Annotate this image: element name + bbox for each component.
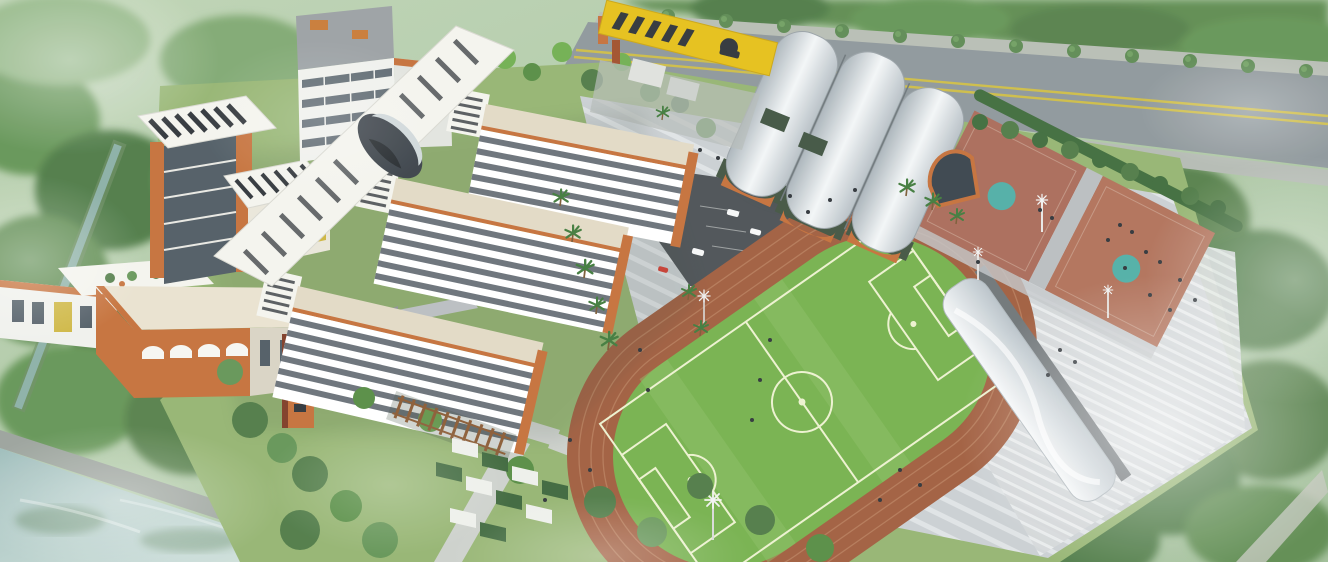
campus-rendering (0, 0, 1328, 562)
haze-patches (0, 0, 1328, 562)
campus-scene-svg (0, 0, 1328, 562)
